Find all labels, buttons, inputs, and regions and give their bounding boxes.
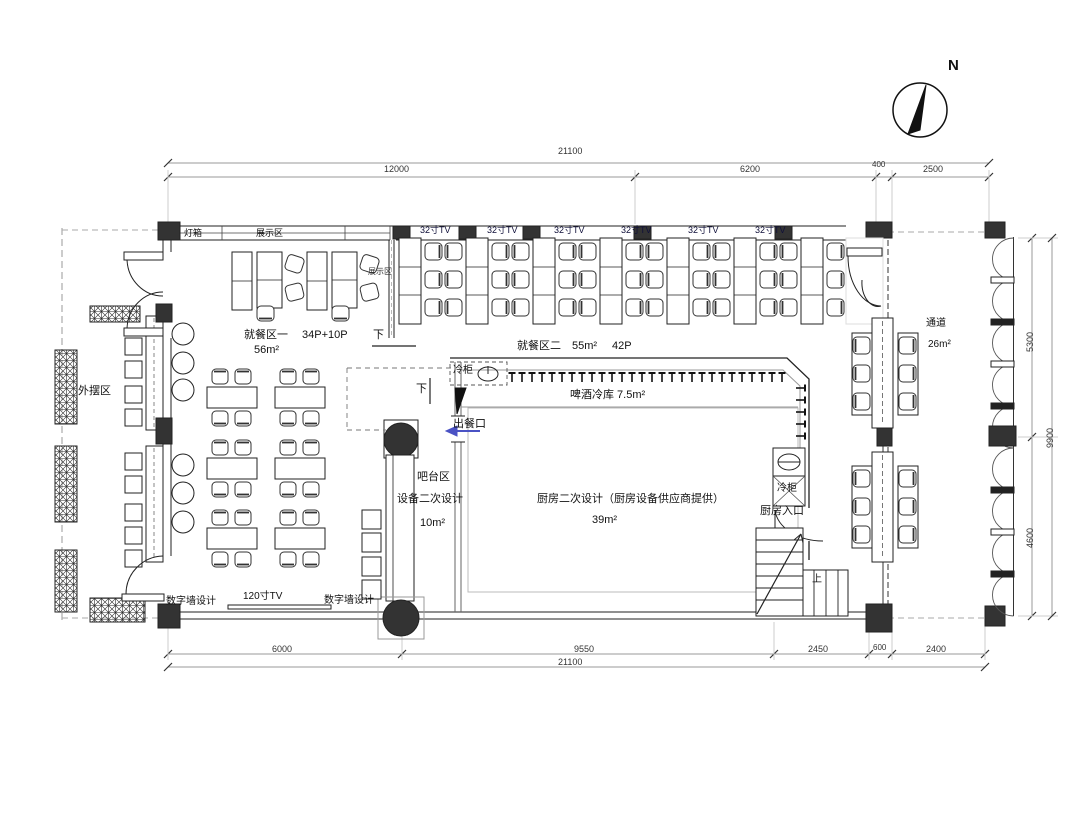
- north-compass: [893, 83, 947, 137]
- dim-bottom-seg-2450: 2450: [808, 645, 828, 654]
- dim-bottom-seg-2400: 2400: [926, 645, 946, 654]
- tv120-label: 120寸TV: [243, 592, 282, 602]
- bar-name: 吧台区: [417, 472, 450, 483]
- dining1-area: 56m²: [254, 345, 279, 356]
- corridor-name: 通道: [926, 319, 946, 329]
- digital-wall-label-1: 数字墙设计: [166, 597, 216, 607]
- dining2-name: 就餐区二: [517, 341, 561, 352]
- dimension-lines: [164, 159, 1058, 671]
- down-mark-2: 下: [416, 384, 427, 395]
- dim-bottom-seg-6000: 6000: [272, 645, 292, 654]
- tv32-label-1: 32寸TV: [420, 226, 451, 235]
- east-curtain-wall: [989, 237, 1016, 616]
- corridor-area: 26m²: [928, 340, 951, 350]
- bar-area: 10m²: [420, 518, 445, 529]
- cold-cabinet-label-2: 冷柜: [777, 484, 797, 494]
- dining1-capacity: 34P+10P: [302, 330, 348, 341]
- north-label: N: [948, 58, 959, 73]
- tv32-label-6: 32寸TV: [755, 226, 786, 235]
- tv32-label-4: 32寸TV: [621, 226, 652, 235]
- dining2-tables: [399, 238, 844, 324]
- dim-bottom-total: 21100: [558, 658, 582, 667]
- down-mark-1: 下: [373, 330, 384, 341]
- tv32-label-5: 32寸TV: [688, 226, 719, 235]
- floor-plan: N 21100 12000 6200 400 2500 6000 9550 24…: [0, 0, 1088, 838]
- tv32-label-2: 32寸TV: [487, 226, 518, 235]
- bar-note: 设备二次设计: [397, 494, 463, 505]
- dim-bottom-seg-600: 600: [873, 644, 886, 652]
- cold-cabinet-right: [773, 448, 805, 506]
- keg-taps: [509, 373, 806, 440]
- digital-wall: [228, 605, 331, 609]
- display-area-label-2: 展示区: [368, 268, 392, 276]
- dining2-capacity: 42P: [612, 341, 632, 352]
- dim-top-seg-2500: 2500: [923, 165, 943, 174]
- dim-top-total: 21100: [558, 147, 582, 156]
- serving-window-label: 出餐口: [453, 419, 486, 430]
- dining1-name: 就餐区一: [244, 330, 288, 341]
- display-area-label: 展示区: [256, 229, 283, 238]
- dim-right-total: 9900: [1046, 428, 1055, 448]
- dining2-area: 55m²: [572, 341, 597, 352]
- up-mark: 上: [812, 575, 822, 585]
- cold-cabinet-label-1: 冷柜: [453, 366, 473, 376]
- kitchen-area: 39m²: [592, 515, 617, 526]
- plan-linework: [0, 0, 1088, 838]
- dim-top-seg-12000: 12000: [384, 165, 409, 174]
- kitchen-name: 厨房二次设计（厨房设备供应商提供）: [537, 494, 724, 505]
- digital-wall-label-2: 数字墙设计: [324, 596, 374, 606]
- dim-top-seg-400: 400: [872, 161, 885, 169]
- dining1-booths: [232, 252, 380, 321]
- dining1-tables: [207, 369, 325, 567]
- stairs: [756, 528, 848, 616]
- dim-top-seg-6200: 6200: [740, 165, 760, 174]
- dim-right-seg-4600: 4600: [1026, 528, 1035, 548]
- dim-right-seg-5300: 5300: [1026, 332, 1035, 352]
- kitchen-entrance-label: 厨房入口: [760, 506, 804, 517]
- tv32-label-3: 32寸TV: [554, 226, 585, 235]
- beer-cold-room-label: 啤酒冷库 7.5m²: [570, 390, 645, 401]
- light-box-label: 灯箱: [184, 229, 202, 238]
- dim-bottom-seg-9550: 9550: [574, 645, 594, 654]
- outdoor-area-label: 外摆区: [78, 386, 111, 397]
